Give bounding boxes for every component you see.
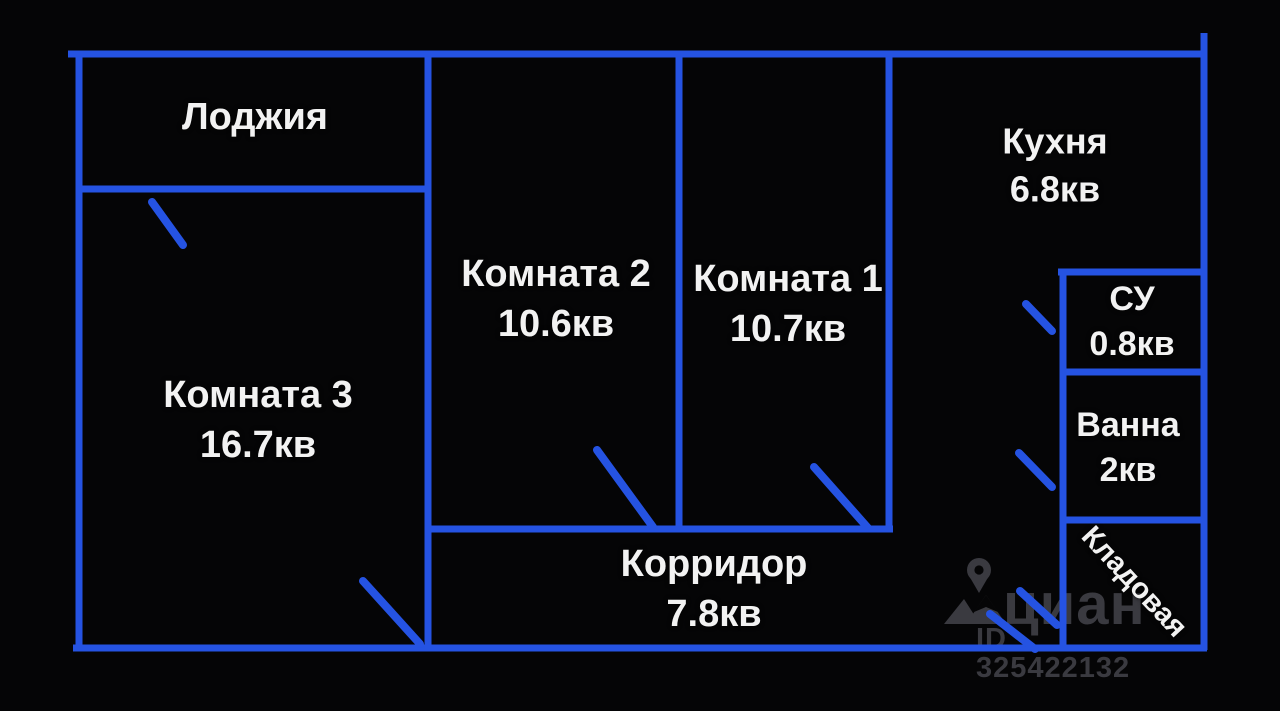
room-label-kitchen: Кухня 6.8кв [1002, 117, 1107, 212]
door-swing-room1 [814, 467, 868, 528]
room-name: СУ [1089, 277, 1174, 322]
room-label-su: СУ 0.8кв [1089, 277, 1174, 367]
room-area: 16.7кв [163, 420, 353, 470]
room-label-loggia: Лоджия [182, 92, 328, 142]
room-area: 7.8кв [621, 589, 808, 639]
door-swing-storage-lower [990, 614, 1035, 649]
room-name: Ванна [1076, 403, 1179, 448]
room-label-corridor: Корридор 7.8кв [621, 539, 808, 639]
room-label-room1: Комната 1 10.7кв [693, 254, 883, 354]
room-area: 0.8кв [1089, 322, 1174, 367]
door-swing-bath [1019, 453, 1052, 487]
room-area: 6.8кв [1002, 165, 1107, 213]
door-swing-loggia [152, 202, 183, 245]
room-name: Комната 1 [693, 254, 883, 304]
door-swing-room2 [597, 450, 653, 527]
room-name: Комната 3 [163, 370, 353, 420]
room-area: 2кв [1076, 448, 1179, 493]
floor-plan-canvas: циан ID 325422132 Лоджия Кухня 6.8кв [0, 0, 1280, 711]
room-label-bath: Ванна 2кв [1076, 403, 1179, 493]
room-name: Кухня [1002, 117, 1107, 165]
room-label-room2: Комната 2 10.6кв [461, 249, 651, 349]
room-area: 10.6кв [461, 299, 651, 349]
door-swing-storage-upper [1020, 591, 1057, 625]
room-name: Комната 2 [461, 249, 651, 299]
room-area: 10.7кв [693, 304, 883, 354]
door-swing-su [1026, 304, 1052, 331]
door-swing-room3 [363, 581, 420, 644]
room-label-room3: Комната 3 16.7кв [163, 370, 353, 470]
room-name: Корридор [621, 539, 808, 589]
room-name: Лоджия [182, 92, 328, 142]
